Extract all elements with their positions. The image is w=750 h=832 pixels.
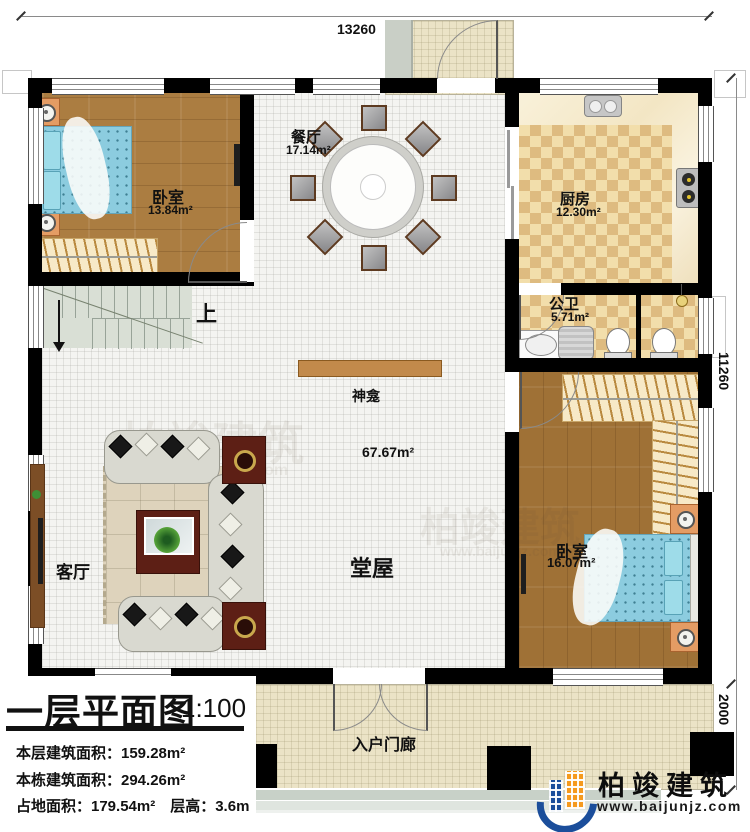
stat-building-area: 本栋建筑面积：294.26m² (16, 769, 185, 790)
bedroom2-door-opening (505, 372, 519, 432)
tv (234, 144, 240, 186)
company-website: www.baijunjz.com (597, 798, 742, 814)
hanging-lamp-icon (676, 295, 688, 307)
pillow (664, 580, 683, 615)
living-label: 客厅 (56, 558, 90, 583)
dining-table-center (360, 174, 386, 200)
pillow (43, 171, 61, 210)
shrine-label: 神龛 (352, 386, 380, 406)
kitchen-floor (519, 125, 672, 283)
coffee-table (136, 510, 200, 574)
stair-direction-arrow (53, 342, 65, 352)
closet-top (562, 374, 700, 422)
dimension-tick (726, 679, 736, 689)
kitchen-area: 12.30m² (556, 205, 601, 219)
dimension-top-value: 13260 (337, 21, 376, 37)
window-sill (712, 296, 726, 358)
plant-icon (154, 527, 180, 553)
kitchen-sliding-door-panel (511, 186, 514, 239)
dimension-right-value: 11260 (716, 352, 732, 390)
window (210, 78, 295, 95)
tv (38, 518, 43, 584)
nightstand (670, 622, 700, 652)
burner-flame-dot (687, 195, 691, 199)
window (540, 78, 658, 95)
stat-footprint-height: 占地面积：179.54m² 层高：3.6m (16, 795, 249, 816)
stair-direction-line (58, 300, 60, 342)
bed (32, 124, 132, 214)
side-table (222, 436, 266, 484)
burner-flame-dot (687, 178, 691, 182)
entry-porch-label: 入户门廊 (352, 731, 416, 755)
bathroom-area: 5.71m² (551, 310, 589, 324)
title-block: 一层平面图 1:100 本层建筑面积：159.28m² 本栋建筑面积：294.2… (0, 676, 256, 832)
wardrobe (30, 238, 158, 274)
bed (584, 534, 698, 620)
window (28, 286, 44, 348)
lamp-icon (234, 616, 256, 638)
nightstand (670, 504, 700, 534)
lamp-icon (677, 511, 695, 529)
sink-basin (604, 100, 617, 113)
dimension-line-right (736, 78, 737, 790)
hall-label: 堂屋 (350, 551, 394, 583)
kitchen-sliding-door-panel (507, 130, 510, 188)
dining-chair (290, 175, 316, 201)
pillow (664, 541, 683, 576)
dining-chair (361, 105, 387, 131)
tv (521, 554, 526, 594)
side-table (222, 602, 266, 650)
stairs-up-label: 上 (196, 298, 217, 328)
window (698, 408, 714, 492)
dining-chair (361, 245, 387, 271)
bedroom1-area: 13.84m² (148, 203, 193, 217)
stat-floor-area: 本层建筑面积：159.28m² (16, 742, 185, 763)
dimension-line-top (22, 16, 712, 17)
dining-chair (431, 175, 457, 201)
company-logo-icon (536, 766, 596, 824)
window (698, 298, 714, 354)
exterior-wall-right (698, 78, 712, 684)
window (698, 106, 714, 162)
closet-rail (31, 256, 157, 258)
lamp-icon (234, 450, 256, 472)
floor-plan-canvas: 13260 11260 2000 柏竣建筑 www.baijunjz.com 柏… (0, 0, 750, 832)
closet-rail (563, 398, 699, 400)
back-porch-door-opening (437, 78, 495, 93)
window (313, 78, 380, 95)
window-sill (714, 70, 746, 98)
plan-scale: 1:100 (181, 693, 246, 724)
hall-area: 67.67m² (362, 444, 414, 460)
bathroom-stall-divider (636, 295, 641, 358)
bedroom2-area: 16.07m² (547, 555, 595, 570)
kitchen-sink (584, 95, 622, 117)
window (52, 78, 164, 95)
title-rule (6, 726, 244, 731)
lamp-icon (677, 629, 695, 647)
entry-door-opening (333, 668, 425, 684)
logo-building-blue (549, 780, 563, 812)
sink-basin (589, 100, 602, 113)
logo-building-orange (565, 771, 585, 809)
window (553, 668, 663, 686)
dimension-right-porch-value: 2000 (716, 694, 732, 725)
watermark-url: www.baijunjz.com (440, 543, 561, 559)
bathroom-bottom-wall (505, 358, 712, 372)
pillow (43, 131, 61, 170)
porch-column (487, 746, 531, 790)
shower-unit (558, 326, 594, 360)
window (28, 108, 44, 204)
plant-icon (32, 490, 41, 499)
shrine-shelf (298, 360, 442, 377)
dining-area: 17.14m² (286, 143, 331, 157)
